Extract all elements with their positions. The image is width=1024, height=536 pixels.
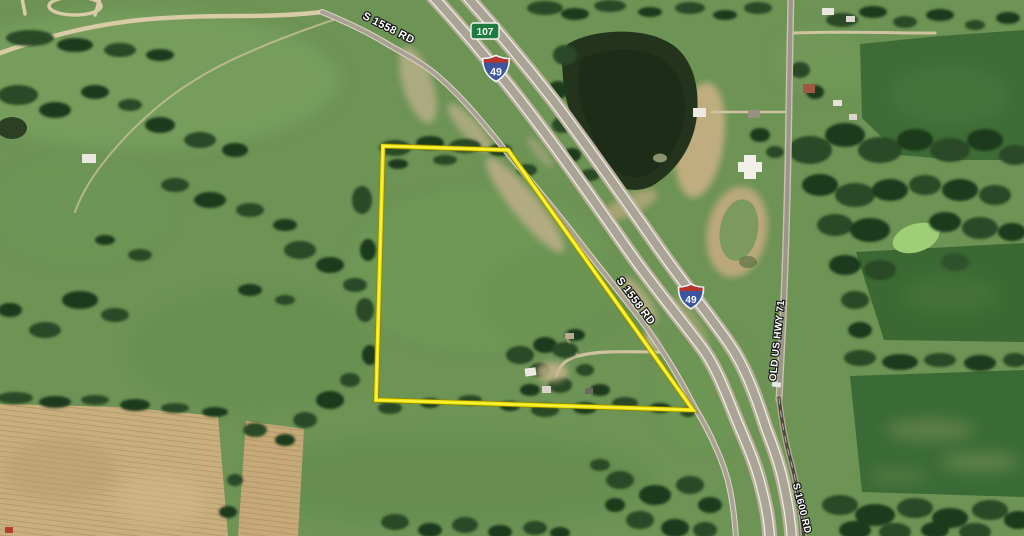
building [585,388,593,394]
building [542,386,551,393]
building [82,154,96,163]
route-107-shield: 107 [471,23,499,39]
building [833,100,842,106]
building [803,84,815,93]
route-107-number: 107 [477,27,494,38]
building [693,108,706,117]
building [748,110,760,118]
building [524,367,536,376]
building [822,8,834,15]
interstate-49-number: 49 [490,66,502,78]
building [849,114,857,120]
interstate-49-number: 49 [685,295,697,306]
pond-island [653,154,667,163]
building [744,155,756,179]
building [846,16,855,22]
satellite-map-image: 107 49 49 S 1558 RD S 1558 RD OLD US HWY… [0,0,1024,536]
red-object [5,527,13,533]
building [565,333,574,339]
